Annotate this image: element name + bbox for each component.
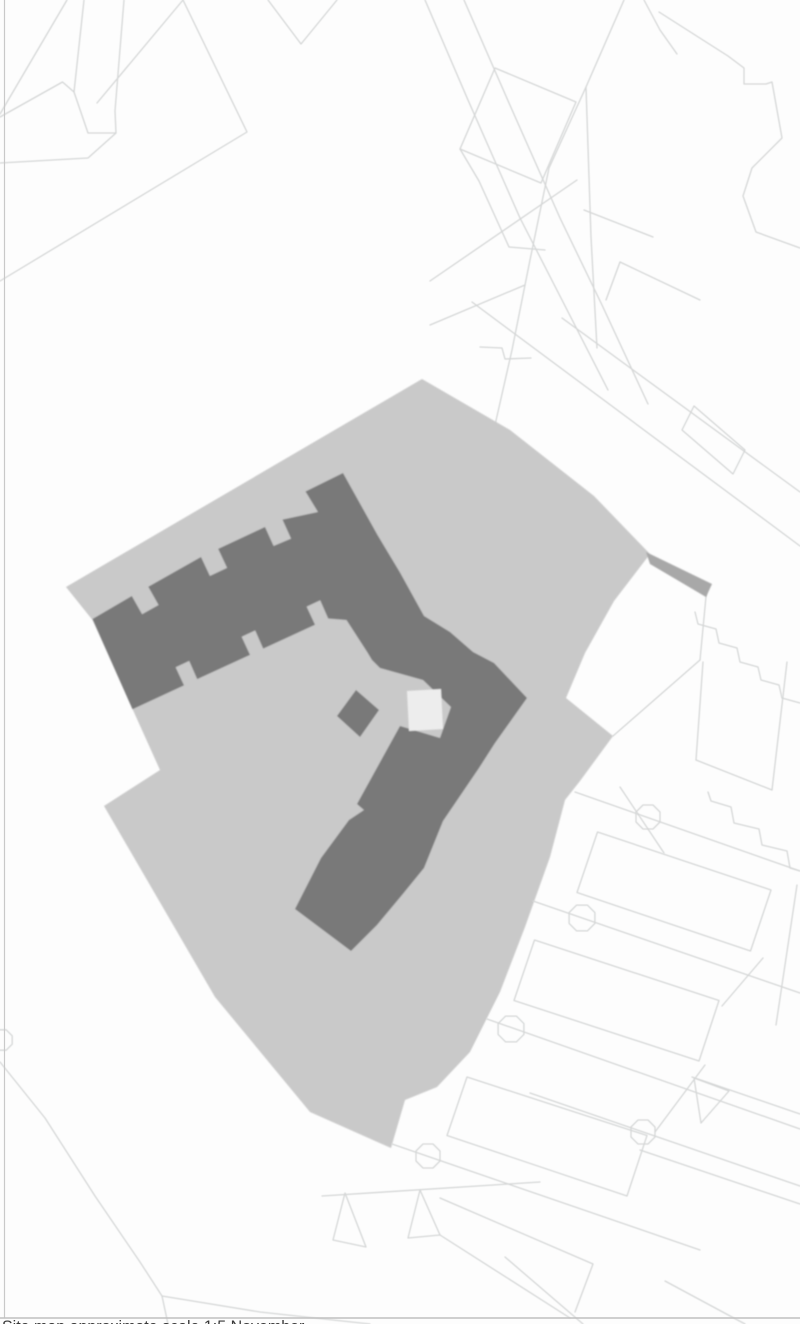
svg-text:Site map approximate scale 1:5: Site map approximate scale 1:5 November	[2, 1319, 305, 1324]
